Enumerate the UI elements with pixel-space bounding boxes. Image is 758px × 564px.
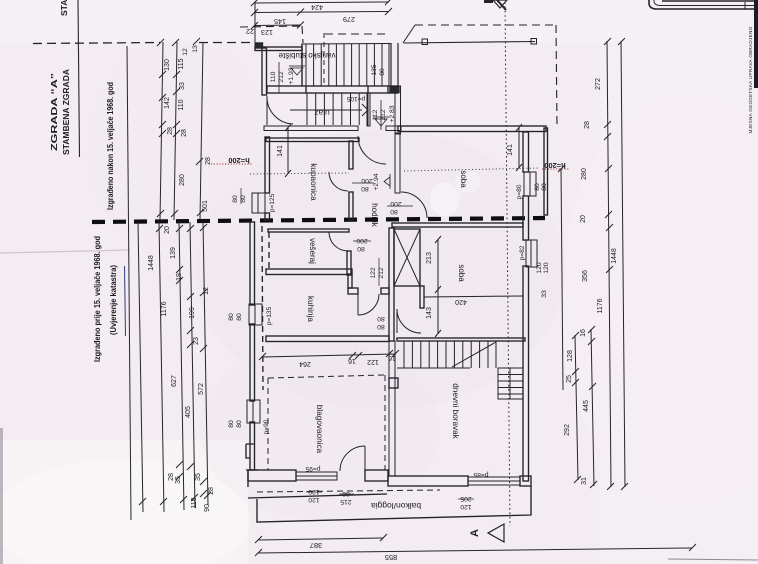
svg-text:200: 200 <box>356 237 368 244</box>
svg-text:+2.94: +2.94 <box>373 173 380 190</box>
svg-text:p=90: p=90 <box>263 419 270 434</box>
svg-text:22: 22 <box>246 27 254 36</box>
svg-text:hodnik: hodnik <box>370 203 379 228</box>
svg-text:p=125: p=125 <box>269 193 276 212</box>
svg-text:12: 12 <box>203 287 210 295</box>
svg-text:soba: soba <box>459 170 468 188</box>
svg-text:215: 215 <box>340 498 352 505</box>
svg-text:35: 35 <box>175 476 182 484</box>
svg-text:120: 120 <box>536 262 543 274</box>
svg-text:627: 627 <box>171 375 178 387</box>
svg-text:12: 12 <box>182 48 189 56</box>
svg-text:kuhinja: kuhinja <box>306 296 315 322</box>
svg-text:280: 280 <box>179 174 186 186</box>
svg-text:p=105: p=105 <box>346 95 365 102</box>
svg-text:139: 139 <box>170 247 177 259</box>
svg-text:STAM: STAM <box>59 0 69 16</box>
svg-text:80: 80 <box>236 420 243 428</box>
svg-text:80: 80 <box>379 68 386 76</box>
svg-text:123: 123 <box>261 28 273 37</box>
svg-text:p=135: p=135 <box>266 306 273 325</box>
svg-text:292: 292 <box>564 424 571 436</box>
svg-text:1176: 1176 <box>597 298 604 313</box>
svg-text:115: 115 <box>178 58 185 69</box>
svg-text:(Uvjerenje katastra): (Uvjerenje katastra) <box>109 265 118 335</box>
svg-text:vanjsko stubište: vanjsko stubište <box>278 51 335 60</box>
svg-text:A: A <box>469 529 481 537</box>
svg-text:445: 445 <box>583 400 590 412</box>
svg-text:Izgrađeno prije 15. veljače 19: Izgrađeno prije 15. veljače 1968. god <box>93 236 102 362</box>
svg-text:p=85: p=85 <box>473 471 488 478</box>
svg-text:MJESNA GEODETSKA UPRAVA OBRADJ: MJESNA GEODETSKA UPRAVA OBRADJENO <box>748 26 753 133</box>
svg-text:blagovaonica: blagovaonica <box>315 405 324 454</box>
svg-text:balkon/loggia: balkon/loggia <box>371 501 421 511</box>
svg-text:STAMBENA ZGRADA: STAMBENA ZGRADA <box>61 69 71 155</box>
svg-text:86: 86 <box>342 490 350 497</box>
svg-text:130: 130 <box>164 59 171 71</box>
svg-text:28: 28 <box>168 473 175 481</box>
svg-text:120: 120 <box>543 262 550 274</box>
svg-text:23: 23 <box>193 337 200 345</box>
svg-text:13: 13 <box>192 45 199 53</box>
svg-text:280: 280 <box>581 168 588 180</box>
svg-text:387: 387 <box>310 541 323 550</box>
svg-text:+2.83: +2.83 <box>389 105 396 122</box>
svg-text:420: 420 <box>455 298 467 305</box>
svg-text:80: 80 <box>361 185 369 192</box>
svg-text:122: 122 <box>370 267 377 279</box>
svg-text:264: 264 <box>299 360 311 367</box>
svg-text:80: 80 <box>228 420 235 428</box>
svg-text:1176: 1176 <box>161 301 168 316</box>
svg-text:25: 25 <box>566 375 573 383</box>
svg-text:kupaonica: kupaonica <box>309 163 318 201</box>
svg-text:110: 110 <box>270 71 277 82</box>
svg-text:80: 80 <box>541 183 548 191</box>
svg-text:143: 143 <box>426 307 433 319</box>
svg-text:80: 80 <box>390 208 398 215</box>
svg-text:135: 135 <box>371 64 378 75</box>
svg-text:80: 80 <box>357 245 365 252</box>
svg-text:572: 572 <box>198 383 205 395</box>
svg-text:279: 279 <box>343 15 355 24</box>
svg-text:501: 501 <box>202 200 209 212</box>
svg-text:205: 205 <box>460 495 472 502</box>
svg-text:128: 128 <box>567 350 574 362</box>
svg-text:28: 28 <box>205 157 212 165</box>
svg-text:p=95: p=95 <box>305 465 320 472</box>
svg-text:80: 80 <box>228 313 235 321</box>
svg-text:33: 33 <box>541 290 548 298</box>
svg-text:28: 28 <box>167 127 174 135</box>
svg-text:16: 16 <box>348 357 356 364</box>
svg-text:20: 20 <box>164 226 171 234</box>
svg-text:28: 28 <box>208 487 215 495</box>
svg-text:vešeraj: vešeraj <box>308 238 317 264</box>
svg-text:356: 356 <box>582 270 589 282</box>
svg-text:213: 213 <box>426 252 433 264</box>
svg-text:272: 272 <box>595 78 602 90</box>
svg-text:405: 405 <box>185 406 192 418</box>
svg-text:1448: 1448 <box>148 255 155 271</box>
svg-text:19: 19 <box>176 273 183 281</box>
svg-text:80: 80 <box>236 313 243 321</box>
svg-text:soba: soba <box>457 264 466 282</box>
svg-text:80: 80 <box>232 195 239 203</box>
svg-text:120: 120 <box>460 503 472 510</box>
svg-text:855: 855 <box>385 553 398 562</box>
svg-text:80: 80 <box>377 315 385 322</box>
svg-text:120: 120 <box>308 488 320 495</box>
svg-text:31: 31 <box>581 477 588 485</box>
svg-text:Izgrađeno nakon 15. veljače 19: Izgrađeno nakon 15. veljače 1968. god <box>106 82 115 210</box>
svg-text:90: 90 <box>204 504 211 512</box>
svg-text:424: 424 <box>311 3 323 12</box>
svg-text:145: 145 <box>274 17 286 26</box>
svg-text:33: 33 <box>179 82 186 90</box>
svg-text:ulaz: ulaz <box>314 108 330 118</box>
svg-text:ZGRADA “A”: ZGRADA “A” <box>49 73 59 151</box>
svg-text:28: 28 <box>181 129 188 137</box>
svg-text:28: 28 <box>584 121 591 129</box>
svg-text:141: 141 <box>507 144 514 156</box>
svg-text:118: 118 <box>191 497 198 508</box>
svg-text:122: 122 <box>367 358 379 365</box>
svg-text:16: 16 <box>580 329 587 337</box>
svg-text:80: 80 <box>534 183 541 191</box>
svg-text:p=80: p=80 <box>516 184 523 199</box>
svg-text:+1.93: +1.93 <box>288 67 295 84</box>
svg-text:80: 80 <box>377 323 385 330</box>
svg-text:141: 141 <box>277 145 284 157</box>
svg-text:1448: 1448 <box>611 248 618 264</box>
svg-text:199: 199 <box>189 307 196 319</box>
svg-text:p=82: p=82 <box>519 245 526 260</box>
svg-text:dnevni boravak: dnevni boravak <box>451 383 460 439</box>
svg-text:110: 110 <box>178 99 185 110</box>
svg-text:20: 20 <box>580 215 587 223</box>
svg-text:120: 120 <box>308 496 320 503</box>
svg-text:142: 142 <box>164 97 171 109</box>
svg-text:35: 35 <box>195 473 202 481</box>
